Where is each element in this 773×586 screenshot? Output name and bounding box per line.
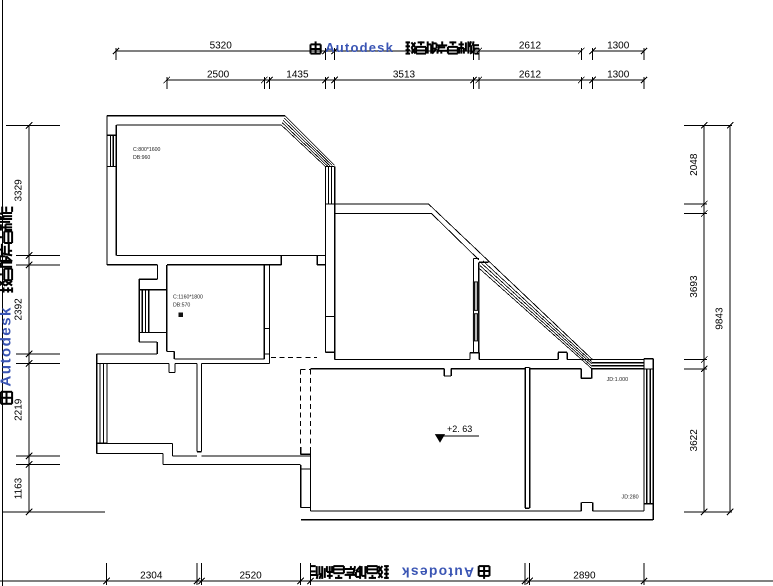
svg-text:1300: 1300 xyxy=(607,69,630,80)
svg-text:1163: 1163 xyxy=(14,477,25,499)
svg-text:C:800*1600: C:800*1600 xyxy=(133,147,161,153)
svg-text:1435: 1435 xyxy=(286,69,309,80)
svg-text:2048: 2048 xyxy=(689,153,700,176)
svg-text:DB:570: DB:570 xyxy=(173,302,190,308)
svg-text:DB:960: DB:960 xyxy=(133,155,150,161)
svg-text:3329: 3329 xyxy=(14,179,25,202)
svg-text:2392: 2392 xyxy=(14,298,25,321)
svg-text:2890: 2890 xyxy=(573,571,596,582)
svg-text:3693: 3693 xyxy=(689,275,700,298)
svg-text:JD:1.000: JD:1.000 xyxy=(607,377,629,383)
svg-text:3622: 3622 xyxy=(689,429,700,452)
svg-text:C:1160*1800: C:1160*1800 xyxy=(173,294,203,300)
svg-text:1300: 1300 xyxy=(607,40,630,51)
svg-text:3513: 3513 xyxy=(393,69,416,80)
svg-text:2500: 2500 xyxy=(207,69,230,80)
svg-text:9843: 9843 xyxy=(715,307,726,330)
svg-text:JD:280: JD:280 xyxy=(622,494,639,500)
svg-text:Autodesk: Autodesk xyxy=(0,306,15,386)
svg-text:Autodesk: Autodesk xyxy=(325,40,394,55)
svg-text:Autodesk: Autodesk xyxy=(401,565,474,580)
svg-text:+2. 63: +2. 63 xyxy=(447,424,472,434)
svg-text:2304: 2304 xyxy=(140,571,163,582)
svg-text:5320: 5320 xyxy=(210,40,233,51)
svg-text:2520: 2520 xyxy=(239,571,262,582)
svg-text:2219: 2219 xyxy=(14,398,25,421)
svg-text:2612: 2612 xyxy=(519,40,542,51)
svg-text:2612: 2612 xyxy=(519,69,542,80)
